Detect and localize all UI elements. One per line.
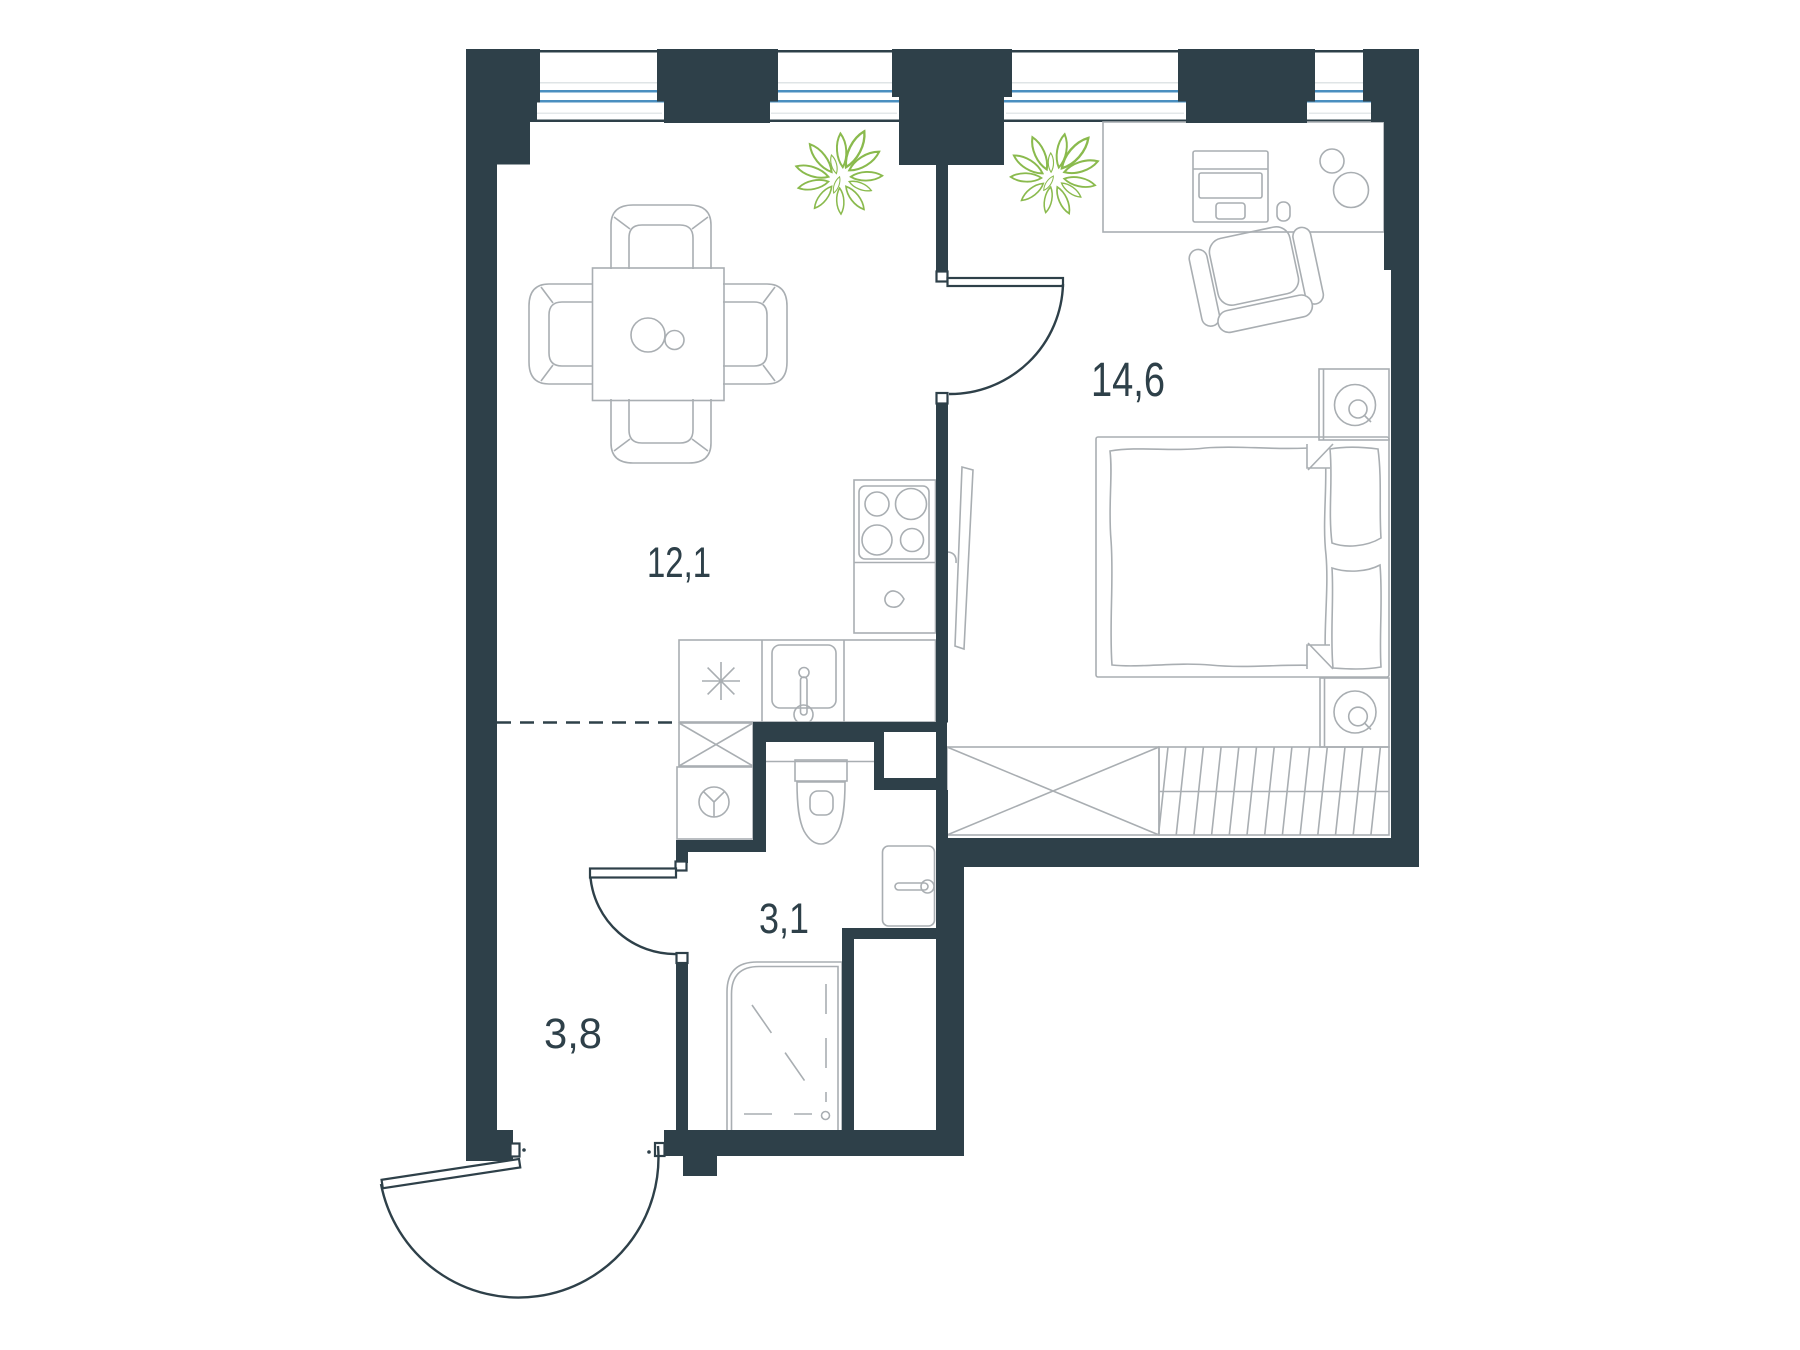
svg-text:3,8: 3,8 — [544, 1010, 602, 1058]
svg-text:12,1: 12,1 — [647, 539, 711, 587]
svg-text:14,6: 14,6 — [1091, 354, 1165, 407]
svg-text:3,1: 3,1 — [759, 895, 809, 943]
